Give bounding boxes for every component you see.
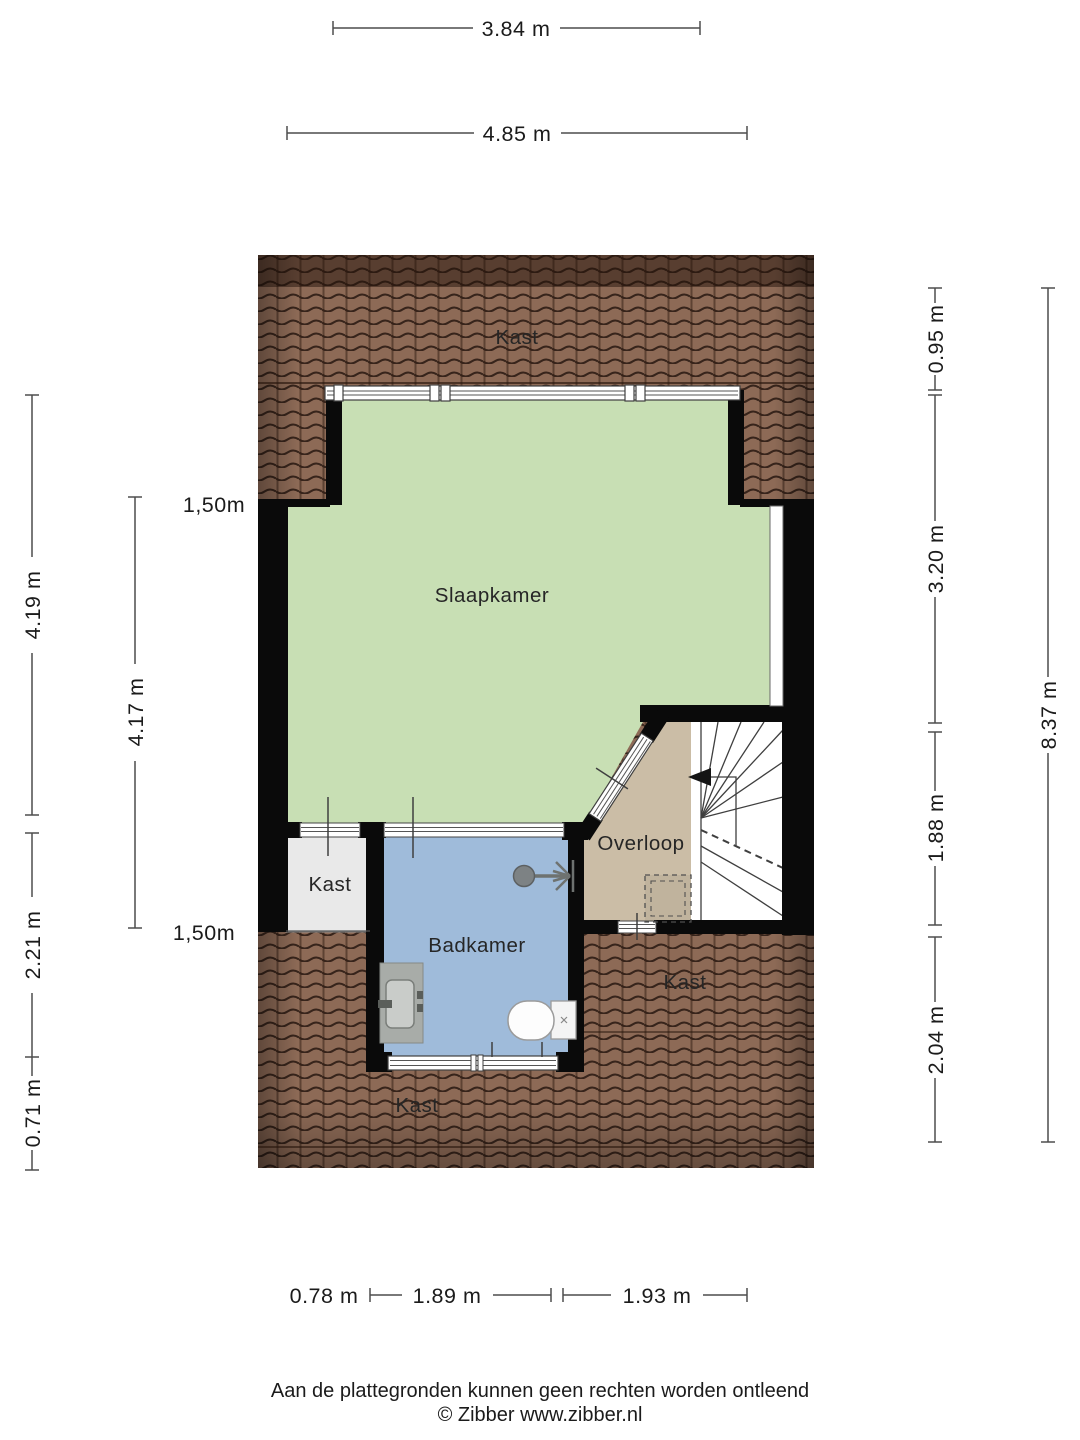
- right-wall-window: [770, 506, 783, 706]
- svg-text:0.95 m: 0.95 m: [924, 305, 948, 374]
- svg-text:3.84 m: 3.84 m: [482, 17, 551, 41]
- dim-bottom-b: 1.89 m: [370, 1284, 551, 1308]
- roof-ridge: [258, 255, 814, 287]
- room-label-overloop: Overloop: [597, 832, 684, 855]
- room-label-kast-right: Kast: [663, 971, 706, 994]
- svg-text:1.88 m: 1.88 m: [924, 794, 948, 863]
- room-label-kast-top: Kast: [495, 326, 538, 349]
- room-label-kast-bottom: Kast: [395, 1094, 438, 1117]
- dim-right-c: 1.88 m: [924, 732, 948, 925]
- room-label-kast-left: Kast: [308, 873, 351, 896]
- dim-top-outer: 4.85 m: [287, 122, 747, 146]
- attic-hatch: [645, 875, 691, 922]
- dim-right-a: 0.95 m: [924, 288, 948, 390]
- top-dormer-window: [325, 385, 740, 401]
- dim-left-b: 2.21 m: [21, 833, 45, 1057]
- svg-text:8.37 m: 8.37 m: [1037, 681, 1061, 750]
- floorplan-canvas: Kast Slaapkamer Kast Badkamer Overloop K…: [0, 0, 1080, 1440]
- svg-text:4.85 m: 4.85 m: [483, 122, 552, 146]
- footer-disclaimer: Aan de plattegronden kunnen geen rechten…: [271, 1380, 809, 1402]
- knee-line-label-top: 1,50m: [183, 493, 245, 517]
- knee-line-label-bottom: 1,50m: [173, 921, 235, 945]
- dim-left-inner: 4.17 m: [124, 497, 148, 928]
- room-label-slaapkamer: Slaapkamer: [435, 584, 549, 607]
- svg-text:0.71 m: 0.71 m: [21, 1079, 45, 1148]
- dim-right-total: 8.37 m: [1037, 288, 1061, 1142]
- dim-bottom-c: 1.93 m: [563, 1284, 747, 1308]
- room-label-badkamer: Badkamer: [428, 934, 525, 957]
- dim-top-inner: 3.84 m: [333, 17, 700, 41]
- toilet-icon: [508, 1001, 576, 1040]
- stairwell-floor: [691, 722, 783, 922]
- svg-text:1.93 m: 1.93 m: [623, 1284, 692, 1308]
- floorplan-page: Kast Slaapkamer Kast Badkamer Overloop K…: [0, 0, 1080, 1440]
- svg-text:3.20 m: 3.20 m: [924, 525, 948, 594]
- dim-right-b: 3.20 m: [924, 395, 948, 723]
- footer-credit: © Zibber www.zibber.nl: [438, 1404, 643, 1426]
- dim-right-d: 2.04 m: [924, 937, 948, 1142]
- dim-left-a: 4.19 m: [21, 395, 45, 815]
- svg-text:2.04 m: 2.04 m: [924, 1006, 948, 1075]
- svg-text:1.89 m: 1.89 m: [413, 1284, 482, 1308]
- dim-bottom-a: 0.78 m: [290, 1284, 359, 1308]
- svg-text:2.21 m: 2.21 m: [21, 911, 45, 980]
- svg-text:4.19 m: 4.19 m: [21, 571, 45, 640]
- dim-left-c: 0.71 m: [21, 1057, 45, 1170]
- sink-icon: [378, 963, 423, 1043]
- svg-text:4.17 m: 4.17 m: [124, 678, 148, 747]
